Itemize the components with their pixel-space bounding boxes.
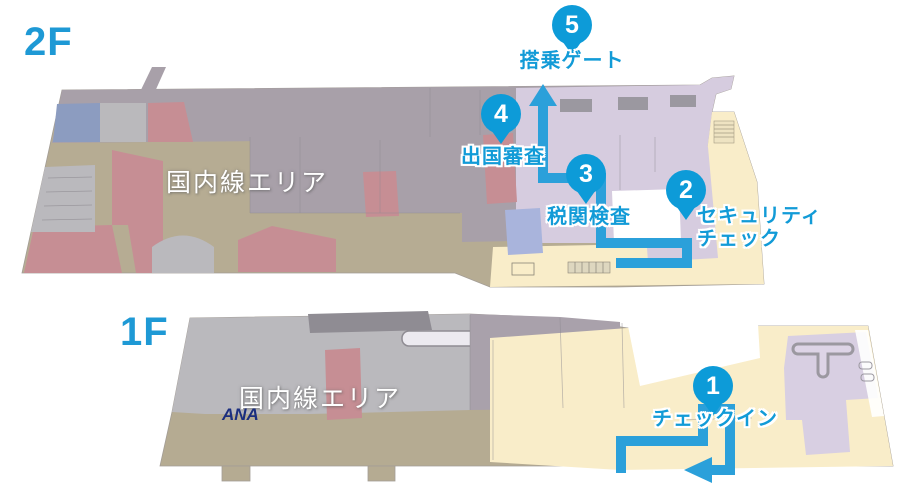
ana-logo: ANA bbox=[222, 406, 259, 423]
step-label-checkin: チェックイン bbox=[630, 408, 800, 431]
pin-number-4: 4 bbox=[494, 102, 508, 127]
step-pin-1: 1 bbox=[693, 366, 733, 406]
pin-number-2: 2 bbox=[679, 178, 693, 203]
step-label-immigration: 出国審査 bbox=[418, 146, 588, 169]
room-2f-stairs-block bbox=[31, 165, 95, 232]
terminal-floor-map: 5 4 3 2 1 搭乗ゲート 出国審査 税関検査 セキュリティ チェック チェ… bbox=[0, 0, 900, 486]
step-pin-2: 2 bbox=[666, 170, 706, 210]
room-2f-gray bbox=[100, 103, 146, 142]
step-pin-4: 4 bbox=[481, 94, 521, 134]
floor-label-1f: 1F bbox=[120, 312, 169, 352]
area-label-domestic-2f: 国内線エリア bbox=[137, 171, 357, 196]
step-label-security: セキュリティ チェック bbox=[697, 205, 867, 251]
floor-label-2f: 2F bbox=[24, 22, 73, 62]
pin-number-5: 5 bbox=[565, 13, 579, 38]
room-2f-bluegray bbox=[53, 103, 100, 142]
zone-1f-darkband bbox=[308, 311, 432, 333]
room-2f-red-left-b bbox=[24, 225, 122, 273]
entrance-tab-2 bbox=[368, 466, 395, 481]
step-label-customs: 税関検査 bbox=[504, 206, 674, 229]
pin-number-1: 1 bbox=[706, 374, 720, 399]
step-label-boarding-gate: 搭乗ゲート bbox=[487, 50, 657, 73]
step-pin-5: 5 bbox=[552, 5, 592, 45]
stairs-2f-wing bbox=[714, 121, 734, 143]
room-2f-red-mid bbox=[363, 171, 399, 217]
entrance-tab-1 bbox=[222, 466, 250, 481]
floor-2f-map bbox=[22, 67, 764, 287]
